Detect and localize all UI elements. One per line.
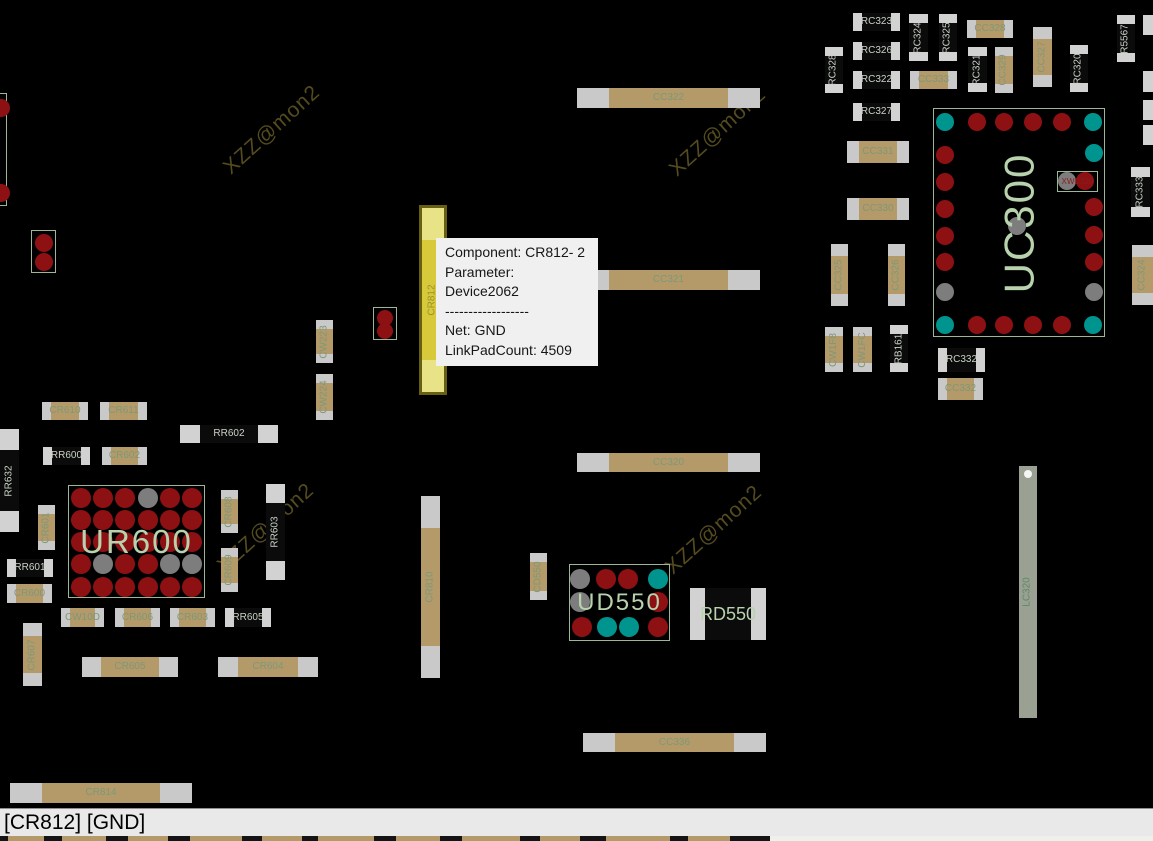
chip-pad[interactable] (1085, 226, 1103, 244)
component-pad (967, 20, 976, 38)
component-pad (221, 524, 238, 533)
component-pad (910, 71, 919, 89)
component-cc333[interactable]: CC333 (910, 71, 957, 89)
chip-pad[interactable] (596, 569, 616, 589)
component-rc324[interactable]: RC324 (909, 14, 928, 61)
component-pad (1131, 207, 1150, 217)
component-rr601[interactable]: RR601 (7, 559, 53, 577)
chip-pad[interactable] (115, 577, 135, 597)
component-pad (853, 327, 872, 336)
component-pad (938, 348, 947, 372)
bottom-strip-segment (606, 836, 670, 841)
chip-pad[interactable] (936, 146, 954, 164)
chip-pad[interactable] (160, 554, 180, 574)
component-pad-pair[interactable] (31, 230, 56, 273)
chip-pad[interactable] (1053, 316, 1071, 334)
component-pad (530, 553, 547, 562)
bottom-strip-segment (318, 836, 374, 841)
component-cw10d[interactable]: CW10D (61, 608, 104, 627)
chip-pad[interactable] (936, 227, 954, 245)
component-pad (728, 88, 760, 108)
component-xwc320[interactable]: XWC320 (1057, 171, 1098, 192)
chip-ud550[interactable]: UD550 (569, 564, 670, 641)
chip-pad[interactable] (93, 510, 113, 530)
component-pad (298, 657, 318, 677)
component-pad (421, 646, 440, 678)
component-rr602[interactable]: RR602 (180, 425, 278, 443)
component-cc327[interactable]: CC327 (1033, 27, 1052, 87)
component-pad (23, 673, 42, 686)
component-pad (43, 584, 52, 603)
component-pad (1070, 45, 1088, 54)
component-pad (891, 13, 900, 31)
component-pad (100, 402, 109, 420)
component-pad (976, 348, 985, 372)
component-pad (42, 402, 51, 420)
component-pad (728, 453, 760, 472)
component-pad (316, 320, 333, 329)
component-rr600[interactable]: RR600 (43, 447, 90, 465)
component-pad (221, 490, 238, 499)
chip-pad[interactable] (1024, 113, 1042, 131)
component-cd550[interactable]: CD550 (530, 553, 547, 600)
chip-pad[interactable] (182, 577, 202, 597)
component-pad-stub (1143, 125, 1153, 145)
bottom-strip-segment (8, 836, 44, 841)
component-cr610[interactable]: CR610 (42, 402, 88, 420)
component-cc332[interactable]: CC332 (938, 378, 983, 400)
component-cc330[interactable]: CC330 (847, 198, 909, 220)
chip-pad[interactable] (71, 510, 91, 530)
component-pad (0, 99, 10, 117)
component-pad (1117, 53, 1135, 62)
chip-pad[interactable] (93, 488, 113, 508)
chip-pad[interactable] (1085, 198, 1103, 216)
tooltip-net-line: Net: GND (445, 321, 589, 341)
bottom-strip-light (770, 836, 1153, 841)
component-pad (115, 608, 124, 627)
chip-pad[interactable] (138, 577, 158, 597)
bottom-strip-segment (262, 836, 302, 841)
component-lc320[interactable]: LC320 (1019, 466, 1037, 718)
component-cc325[interactable]: CC325 (831, 244, 848, 306)
component-pad (138, 447, 147, 465)
component-pad (939, 52, 957, 61)
component-pad (160, 783, 192, 803)
watermark-text: XZZ@mon2 (219, 80, 325, 179)
watermark-text: XZZ@mon2 (661, 480, 767, 579)
component-pad (577, 88, 609, 108)
component-cc329[interactable]: CC329 (995, 47, 1013, 93)
component-cc331[interactable]: CC331 (847, 141, 909, 163)
component-pad (10, 783, 42, 803)
component-label: LC320 (1019, 466, 1037, 718)
component-pad (909, 14, 928, 23)
component-pad (82, 657, 101, 677)
bottom-strip-segment (688, 836, 730, 841)
pcb-viewer-window: XZZ@mon2XZZ@mon2XZZ@mon2XZZ@mon2RC323RC3… (0, 0, 1153, 841)
chip-pad[interactable] (138, 554, 158, 574)
component-pad (891, 103, 900, 121)
component-pad (968, 83, 987, 92)
component-rc327[interactable]: RC327 (853, 103, 900, 121)
component-pad (974, 378, 983, 400)
chip-pad[interactable] (968, 316, 986, 334)
chip-pad[interactable] (182, 510, 202, 530)
component-rr603[interactable]: RR603 (266, 484, 285, 580)
component-rc322[interactable]: RC322 (853, 71, 900, 89)
component-pad (751, 588, 766, 640)
component-pad (316, 354, 333, 363)
component-pad (35, 253, 53, 271)
component-pad (948, 71, 957, 89)
component-cr611[interactable]: CR611 (100, 402, 147, 420)
tooltip-parameter-line: Parameter: Device2062 (445, 263, 589, 302)
tooltip-divider: ------------------ (445, 302, 589, 322)
chip-pad[interactable] (936, 316, 954, 334)
component-pad-stub (1143, 71, 1153, 92)
component-cc324[interactable]: CC324 (1132, 245, 1153, 305)
component-rr632[interactable]: RR632 (0, 429, 19, 532)
component-pad (1117, 15, 1135, 24)
component-pad (218, 657, 238, 677)
chip-pad[interactable] (619, 617, 639, 637)
component-cr603[interactable]: CR603 (170, 608, 215, 627)
component-pad (891, 71, 900, 89)
hover-tooltip: Component: CR812- 2 Parameter: Device206… (436, 238, 598, 366)
component-pad (853, 42, 862, 60)
component-cw223[interactable]: CW223 (316, 320, 333, 363)
component-pad (221, 583, 238, 592)
chip-pad[interactable] (570, 592, 590, 612)
chip-pad[interactable] (1008, 217, 1026, 235)
chip-pad[interactable] (115, 532, 135, 552)
status-bar: [CR812] [GND] (0, 808, 1153, 836)
component-pad (266, 561, 285, 580)
component-rr605[interactable]: RR605 (225, 608, 271, 627)
component-pad (170, 608, 179, 627)
component-cr601[interactable]: CR601 (38, 505, 55, 550)
component-cr602[interactable]: CR602 (102, 447, 147, 465)
bottom-strip (0, 836, 1153, 841)
component-pad-pair[interactable] (373, 307, 397, 340)
component-pad (995, 84, 1013, 93)
component-pad (690, 588, 705, 640)
component-pad (35, 234, 53, 252)
component-rc326[interactable]: RC326 (853, 42, 900, 60)
component-pad (138, 402, 147, 420)
chip-pad[interactable] (182, 554, 202, 574)
chip-uc300[interactable]: UC300XWC320 (933, 108, 1105, 337)
component-pad (847, 198, 859, 220)
chip-pad[interactable] (160, 532, 180, 552)
status-selection-text: [CR812] [GND] (4, 811, 145, 835)
component-cc322[interactable]: CC322 (577, 88, 760, 108)
component-pad (825, 327, 843, 336)
component-pad (968, 47, 987, 56)
chip-pad[interactable] (71, 554, 91, 574)
chip-pad[interactable] (138, 532, 158, 552)
component-pad (7, 559, 16, 577)
component-pad (266, 484, 285, 503)
component-rc333[interactable]: RC333 (1131, 167, 1150, 217)
component-pad (891, 42, 900, 60)
chip-pad[interactable] (618, 569, 638, 589)
chip-pad[interactable] (182, 488, 202, 508)
component-label: XWC320 (1058, 172, 1097, 191)
component-pad (0, 429, 19, 450)
bottom-strip-segment (62, 836, 106, 841)
component-pad (316, 411, 333, 420)
tooltip-component-line: Component: CR812- 2 (445, 243, 589, 263)
component-cc326[interactable]: CC326 (888, 244, 905, 306)
component-rc321[interactable]: RC321 (968, 47, 987, 92)
component-pad (421, 496, 440, 528)
component-rb161[interactable]: RB161 (890, 325, 908, 372)
component-cc336[interactable]: CC336 (583, 733, 766, 752)
chip-pad[interactable] (936, 113, 954, 131)
tooltip-linkpadcount-line: LinkPadCount: 4509 (445, 341, 589, 361)
chip-pad[interactable] (160, 510, 180, 530)
chip-pad[interactable] (71, 488, 91, 508)
component-cr609[interactable]: CR609 (221, 548, 238, 592)
component-pad (61, 608, 70, 627)
component-pad (995, 47, 1013, 56)
chip-pad[interactable] (160, 488, 180, 508)
component-pad (1004, 20, 1013, 38)
component-pad (225, 608, 234, 627)
chip-pad[interactable] (160, 577, 180, 597)
chip-pad[interactable] (1084, 316, 1102, 334)
component-pad (890, 363, 908, 372)
component-pad (831, 244, 848, 256)
chip-pad[interactable] (71, 532, 91, 552)
chip-pad[interactable] (138, 488, 158, 508)
chip-pad[interactable] (995, 316, 1013, 334)
component-pad (853, 103, 862, 121)
chip-pad[interactable] (115, 488, 135, 508)
component-pad (38, 505, 55, 514)
component-rd550[interactable]: RD550 (690, 588, 766, 640)
component-rc332[interactable]: RC332 (938, 348, 985, 372)
component-pad (1033, 75, 1052, 87)
component-pad (734, 733, 766, 752)
chip-pad[interactable] (93, 554, 113, 574)
component-pad (888, 294, 905, 306)
component-pad (79, 402, 88, 420)
chip-pad[interactable] (936, 283, 954, 301)
component-pad (888, 244, 905, 256)
component-pad (0, 184, 10, 202)
component-cr814[interactable]: CR814 (10, 783, 192, 803)
component-cr605[interactable]: CR605 (82, 657, 178, 677)
chip-ur600[interactable]: UR600 (68, 485, 205, 598)
component-pad (180, 425, 200, 443)
component-pad (102, 447, 111, 465)
component-pad (0, 511, 19, 532)
component-rc323[interactable]: RC323 (853, 13, 900, 31)
chip-pad[interactable] (71, 577, 91, 597)
chip-pad[interactable] (115, 510, 135, 530)
bottom-strip-segment (190, 836, 242, 841)
component-cr606[interactable]: CR606 (115, 608, 160, 627)
bottom-strip-segment (396, 836, 440, 841)
chip-pad[interactable] (936, 200, 954, 218)
component-cw1f8[interactable]: CW1F8 (825, 327, 843, 372)
component-pad (377, 323, 393, 339)
component-cc320[interactable]: CC320 (577, 453, 760, 472)
bottom-strip-segment (540, 836, 580, 841)
component-pad (23, 623, 42, 636)
component-cr810[interactable]: CR810 (421, 496, 440, 678)
component-pad (38, 541, 55, 550)
chip-pad[interactable] (1024, 316, 1042, 334)
component-pad-pair[interactable] (0, 93, 7, 206)
component-pad (422, 208, 444, 240)
chip-pad[interactable] (648, 617, 668, 637)
chip-pad[interactable] (968, 113, 986, 131)
bottom-strip-segment (462, 836, 520, 841)
component-pad (81, 447, 90, 465)
component-pad (938, 378, 947, 400)
component-pad (853, 13, 862, 31)
component-pad (939, 14, 957, 23)
component-pad (258, 425, 278, 443)
component-pad (897, 198, 909, 220)
component-pad (1033, 27, 1052, 39)
chip-pad[interactable] (93, 532, 113, 552)
pcb-canvas[interactable]: XZZ@mon2XZZ@mon2XZZ@mon2XZZ@mon2RC323RC3… (0, 0, 1153, 808)
chip-pad[interactable] (1053, 113, 1071, 131)
chip-pad[interactable] (1085, 283, 1103, 301)
chip-pad[interactable] (995, 113, 1013, 131)
component-pad (825, 363, 843, 372)
component-pad-stub (1143, 100, 1153, 120)
component-pad (853, 363, 872, 372)
chip-pad[interactable] (1084, 113, 1102, 131)
component-pad (262, 608, 271, 627)
component-pad (1070, 83, 1088, 92)
component-pad (1132, 293, 1153, 305)
component-pad (221, 548, 238, 557)
chip-pad[interactable] (182, 532, 202, 552)
component-cc321[interactable]: CC321 (577, 270, 760, 290)
chip-pad[interactable] (936, 173, 954, 191)
component-pad-stub (1143, 15, 1153, 35)
component-pad (316, 374, 333, 383)
component-pad (890, 325, 908, 334)
component-pad (728, 270, 760, 290)
component-pad (151, 608, 160, 627)
chip-pad[interactable] (1085, 253, 1103, 271)
component-rc328[interactable]: RC328 (825, 47, 843, 93)
chip-pad[interactable] (115, 554, 135, 574)
component-cr600[interactable]: CR600 (7, 584, 52, 603)
component-pad (530, 591, 547, 600)
component-rc325[interactable]: RC325 (939, 14, 957, 61)
component-cr607[interactable]: CR607 (23, 623, 42, 686)
component-cw1fc[interactable]: CW1FC (853, 327, 872, 372)
chip-pad[interactable] (93, 577, 113, 597)
chip-pad[interactable] (572, 617, 592, 637)
component-cr604[interactable]: CR604 (218, 657, 318, 677)
component-pad (853, 71, 862, 89)
component-pad (909, 52, 928, 61)
chip-pad[interactable] (597, 617, 617, 637)
component-pad (1132, 245, 1153, 257)
chip-pad[interactable] (1085, 144, 1103, 162)
chip-pad[interactable] (936, 253, 954, 271)
chip-pad[interactable] (648, 569, 668, 589)
component-pad (1131, 167, 1150, 177)
chip-pad[interactable] (570, 569, 590, 589)
mount-hole (1024, 470, 1032, 478)
component-pad (897, 141, 909, 163)
component-pad (7, 584, 16, 603)
component-pad (44, 559, 53, 577)
component-pad (95, 608, 104, 627)
component-cr608[interactable]: CR608 (221, 490, 238, 533)
component-pad (847, 141, 859, 163)
component-rc320[interactable]: RC320 (1070, 45, 1088, 92)
chip-pad[interactable] (138, 510, 158, 530)
component-pad (159, 657, 178, 677)
component-pad (583, 733, 615, 752)
component-pad (577, 453, 609, 472)
bottom-strip-segment (128, 836, 168, 841)
component-pad (43, 447, 52, 465)
component-pad (825, 84, 843, 93)
component-cw224[interactable]: CW224 (316, 374, 333, 420)
component-r5567[interactable]: R5567 (1117, 15, 1135, 62)
component-pad (831, 294, 848, 306)
chip-pad[interactable] (648, 592, 668, 612)
component-cc328[interactable]: CC328 (967, 20, 1013, 38)
component-pad (825, 47, 843, 56)
component-pad (206, 608, 215, 627)
